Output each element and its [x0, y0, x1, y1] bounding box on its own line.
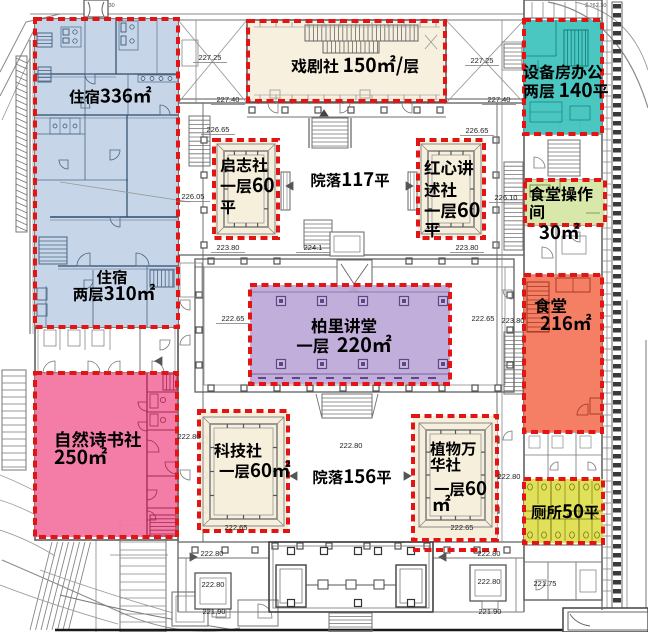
svg-text:223.80: 223.80 [502, 316, 525, 325]
svg-text:221.75: 221.75 [534, 579, 557, 588]
svg-text:222.65: 222.65 [225, 523, 248, 532]
svg-text:221.90: 221.90 [479, 607, 502, 616]
svg-text:222.80: 222.80 [202, 580, 225, 589]
svg-text:222.80: 222.80 [478, 549, 501, 558]
svg-text:222.65: 222.65 [222, 314, 245, 323]
svg-text:222.80: 222.80 [201, 549, 224, 558]
svg-text:223.80: 223.80 [217, 243, 240, 252]
svg-text:222.65: 222.65 [451, 523, 474, 532]
svg-text:224.1: 224.1 [304, 243, 323, 252]
svg-text:222.80: 222.80 [340, 441, 363, 450]
svg-text:227.25: 227.25 [471, 56, 494, 65]
svg-text:222.80: 222.80 [178, 432, 201, 441]
svg-text:226.05: 226.05 [182, 192, 205, 201]
svg-text:227.40: 227.40 [488, 95, 511, 104]
svg-text:222.80: 222.80 [478, 577, 501, 586]
svg-text:227.40: 227.40 [217, 95, 240, 104]
svg-text:221.90: 221.90 [203, 607, 226, 616]
svg-text:226.65: 226.65 [207, 125, 230, 134]
svg-text:227.25: 227.25 [199, 53, 222, 62]
svg-text:226.10: 226.10 [495, 193, 518, 202]
svg-text:222.80: 222.80 [498, 472, 521, 481]
svg-text:223.80: 223.80 [456, 243, 479, 252]
svg-text:226.65: 226.65 [466, 126, 489, 135]
svg-text:222.65: 222.65 [472, 314, 495, 323]
